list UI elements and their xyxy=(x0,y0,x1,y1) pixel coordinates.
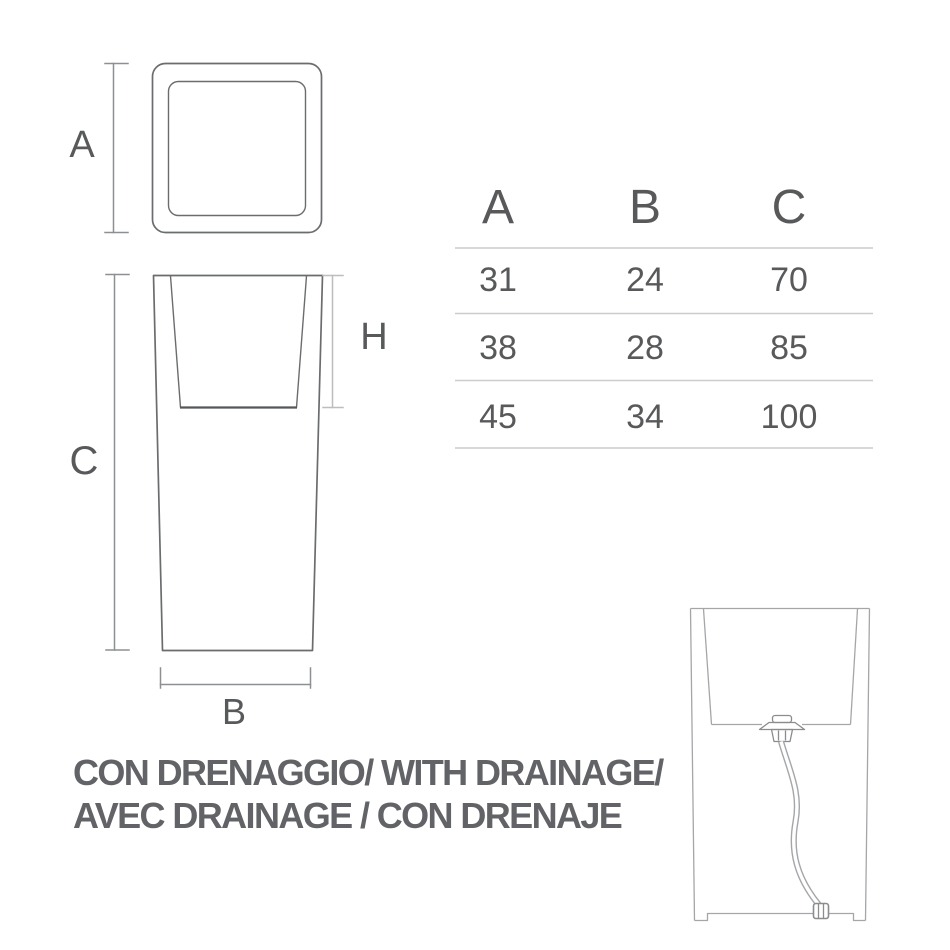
caption-line-1: CON DRENAGGIO/ WITH DRAINAGE/ xyxy=(73,751,663,794)
top-view-outer-rim xyxy=(153,64,322,233)
table-header-b: B xyxy=(600,184,690,232)
top-view-inner-rim xyxy=(169,82,306,216)
drainage-drawing xyxy=(691,609,870,921)
table-cell: 38 xyxy=(453,331,543,365)
drainage-left-wall xyxy=(691,609,695,921)
dim-line-h xyxy=(323,276,343,408)
caption-line-2: AVEC DRAINAGE / CON DRENAJE xyxy=(73,794,663,837)
dim-label-a: A xyxy=(60,126,104,164)
drainage-cavity-left xyxy=(704,609,712,725)
dim-label-h: H xyxy=(352,318,396,356)
table-cell: 28 xyxy=(600,331,690,365)
table-header-c: C xyxy=(743,184,835,232)
front-view-body xyxy=(154,276,323,651)
table-cell: 24 xyxy=(600,263,690,297)
table-cell: 100 xyxy=(743,400,835,434)
dim-label-b: B xyxy=(212,694,256,730)
drainage-right-wall xyxy=(866,609,870,921)
drain-plug-icon xyxy=(814,904,829,919)
table-header-a: A xyxy=(453,184,543,232)
front-view-cavity-left xyxy=(171,276,181,408)
front-view-cavity-right xyxy=(297,276,307,408)
drainage-caption: CON DRENAGGIO/ WITH DRAINAGE/ AVEC DRAIN… xyxy=(73,751,663,837)
table-cell: 45 xyxy=(453,400,543,434)
dim-line-c xyxy=(106,275,129,651)
drain-tube xyxy=(781,742,819,906)
dim-line-b xyxy=(161,668,311,688)
dim-line-a xyxy=(105,64,128,233)
planter-spec-sheet: A C H B A B C 31 24 70 38 28 85 45 34 10… xyxy=(0,0,950,950)
table-cell: 34 xyxy=(600,400,690,434)
drain-valve-icon xyxy=(760,716,805,742)
dim-label-c: C xyxy=(62,441,106,481)
table-cell: 31 xyxy=(453,263,543,297)
drainage-base-feet xyxy=(695,914,866,921)
front-view-drawing xyxy=(154,276,323,651)
table-cell: 85 xyxy=(743,331,835,365)
table-cell: 70 xyxy=(743,263,835,297)
drainage-cavity-right xyxy=(851,609,858,725)
top-view-drawing xyxy=(153,64,322,233)
